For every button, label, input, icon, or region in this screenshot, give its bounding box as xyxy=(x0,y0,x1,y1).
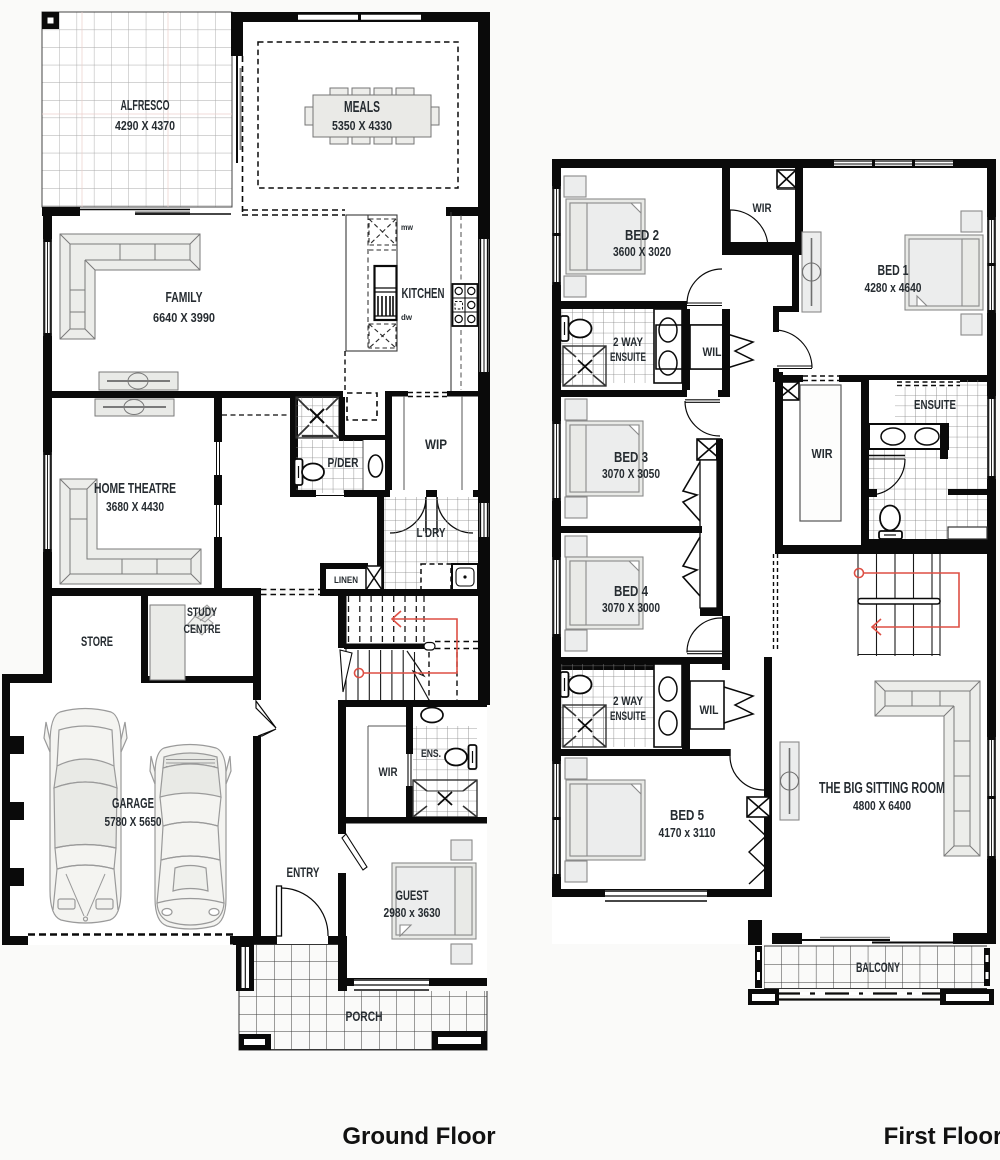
svg-text:4800 X 6400: 4800 X 6400 xyxy=(853,798,911,813)
svg-text:2980 x 3630: 2980 x 3630 xyxy=(384,905,441,920)
svg-text:5780 X 5650: 5780 X 5650 xyxy=(105,814,162,829)
svg-text:ALFRESCO: ALFRESCO xyxy=(121,97,170,114)
svg-text:LINEN: LINEN xyxy=(334,575,358,586)
svg-text:PORCH: PORCH xyxy=(346,1008,383,1024)
svg-text:WIR: WIR xyxy=(379,765,398,779)
svg-text:3070 X 3000: 3070 X 3000 xyxy=(602,600,660,615)
svg-text:GARAGE: GARAGE xyxy=(112,795,154,812)
svg-text:STORE: STORE xyxy=(81,633,113,649)
svg-text:P/DER: P/DER xyxy=(328,455,359,470)
svg-text:3680 X 4430: 3680 X 4430 xyxy=(106,499,164,514)
svg-text:BED 2: BED 2 xyxy=(625,227,659,244)
svg-text:CENTRE: CENTRE xyxy=(184,622,221,636)
svg-text:BED 4: BED 4 xyxy=(614,583,649,600)
svg-text:dw: dw xyxy=(401,312,412,322)
svg-text:MEALS: MEALS xyxy=(344,99,380,116)
svg-text:First Floor: First Floor xyxy=(884,1123,1000,1150)
svg-text:4290 X 4370: 4290 X 4370 xyxy=(115,118,175,133)
svg-text:WIL: WIL xyxy=(700,703,719,717)
svg-text:THE BIG SITTING ROOM: THE BIG SITTING ROOM xyxy=(819,780,945,797)
svg-text:ENSUITE: ENSUITE xyxy=(610,709,646,723)
svg-text:BED 5: BED 5 xyxy=(670,807,704,824)
svg-text:BED 3: BED 3 xyxy=(614,449,648,466)
svg-text:WIL: WIL xyxy=(703,345,722,359)
svg-text:BED 1: BED 1 xyxy=(878,262,909,279)
svg-text:KITCHEN: KITCHEN xyxy=(402,285,445,302)
svg-text:5350 X 4330: 5350 X 4330 xyxy=(332,118,392,133)
svg-text:ENSUITE: ENSUITE xyxy=(610,350,646,364)
svg-text:6640 X 3990: 6640 X 3990 xyxy=(153,310,215,325)
svg-text:Ground Floor: Ground Floor xyxy=(342,1123,495,1150)
svg-text:GUEST: GUEST xyxy=(396,887,429,903)
svg-text:ENS.: ENS. xyxy=(421,748,441,760)
svg-text:WIR: WIR xyxy=(753,201,772,215)
svg-text:BALCONY: BALCONY xyxy=(856,959,900,975)
svg-text:mw: mw xyxy=(401,222,413,232)
svg-text:ENSUITE: ENSUITE xyxy=(914,397,956,412)
svg-text:STUDY: STUDY xyxy=(187,605,217,619)
svg-text:WIP: WIP xyxy=(425,436,447,452)
svg-text:WIR: WIR xyxy=(812,446,833,461)
svg-text:ENTRY: ENTRY xyxy=(287,864,320,880)
svg-text:4170 x 3110: 4170 x 3110 xyxy=(659,825,716,840)
svg-text:2 WAY: 2 WAY xyxy=(613,694,643,708)
svg-text:3070 X 3050: 3070 X 3050 xyxy=(602,466,660,481)
svg-text:FAMILY: FAMILY xyxy=(166,289,203,306)
svg-text:HOME THEATRE: HOME THEATRE xyxy=(94,480,176,497)
svg-text:4280 x 4640: 4280 x 4640 xyxy=(865,280,922,295)
svg-text:3600 X 3020: 3600 X 3020 xyxy=(613,244,671,259)
svg-text:L'DRY: L'DRY xyxy=(417,525,446,540)
svg-text:2 WAY: 2 WAY xyxy=(613,335,643,349)
